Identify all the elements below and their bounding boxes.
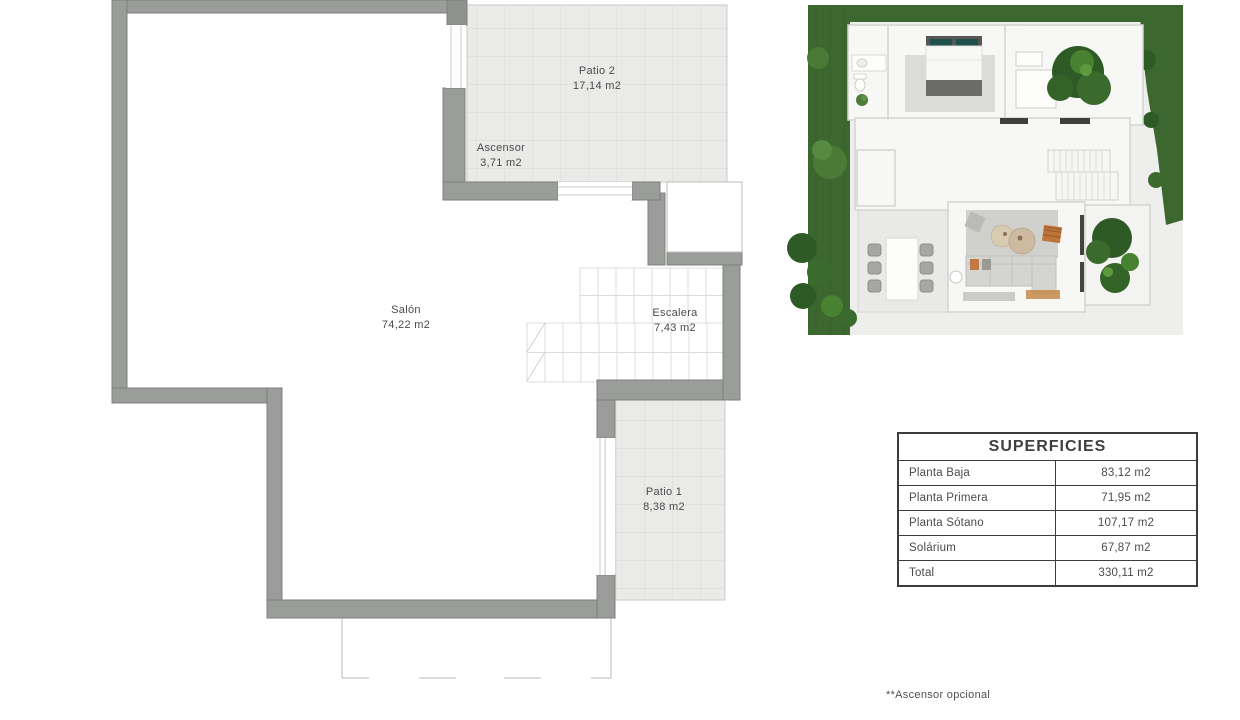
row-value: 71,95 m2 [1056,486,1198,511]
room-area: 7,43 m2 [610,321,740,336]
brochure-page: Patio 2 17,14 m2 Ascensor 3,71 m2 Salón … [0,0,1240,720]
room-name: Escalera [610,306,740,321]
footnote-ascensor-opcional: **Ascensor opcional [886,689,990,701]
window-salon-patio2 [558,182,632,200]
room-name: Patio 2 [532,64,662,79]
render-stairs [1048,150,1118,200]
row-value: 107,17 m2 [1056,511,1198,536]
render-chair [920,262,933,274]
wall-corner-block [447,0,467,25]
wall-entrance-left [648,193,665,265]
label-escalera: Escalera 7,43 m2 [610,306,740,336]
render-bed-throw [926,80,982,96]
render-chair [868,262,881,274]
row-label: Planta Baja [898,461,1056,486]
label-salon: Salón 74,22 m2 [341,303,471,333]
room-name: Salón [341,303,471,318]
wall-lower-left [267,388,282,618]
terrace-outline [342,618,611,678]
render-sofa-chaise [1032,256,1056,294]
render-chair [920,244,933,256]
render-chair [920,280,933,292]
label-ascensor: Ascensor 3,71 m2 [436,141,566,171]
wall-patio1-left-lower [597,575,615,618]
row-label: Planta Primera [898,486,1056,511]
wall-left [112,0,127,403]
render-top-patio [1016,46,1111,108]
table-row: Planta Primera 71,95 m2 [898,486,1197,511]
render-coffee-table [1009,228,1035,254]
render-dining [868,238,933,300]
table-row: Planta Baja 83,12 m2 [898,461,1197,486]
label-patio2: Patio 2 17,14 m2 [532,64,662,94]
render-chair [868,244,881,256]
table-row: Total 330,11 m2 [898,561,1197,587]
render-3d [787,5,1183,335]
render-side-table [950,271,962,283]
floor-plan-drawing [0,0,1240,720]
entrance-box [667,182,742,252]
room-area: 8,38 m2 [599,500,729,515]
row-label: Solárium [898,536,1056,561]
table-row: Planta Sótano 107,17 m2 [898,511,1197,536]
row-label: Total [898,561,1056,587]
row-label: Planta Sótano [898,511,1056,536]
render-sofa-pillow [982,259,991,270]
room-area: 3,71 m2 [436,156,566,171]
wall-escalera-bottom [597,380,740,400]
room-name: Patio 1 [599,485,729,500]
row-value: 67,87 m2 [1056,536,1198,561]
render-toilet [855,79,865,91]
room-area: 17,14 m2 [532,79,662,94]
room-name: Ascensor [436,141,566,156]
superficies-table: SUPERFICIES Planta Baja 83,12 m2 Planta … [897,432,1198,587]
table-header-row: SUPERFICIES [898,433,1197,461]
render-chair [868,280,881,292]
superficies-title: SUPERFICIES [898,433,1197,461]
table-row: Solárium 67,87 m2 [898,536,1197,561]
render-wood-mat [1026,290,1060,299]
room-area: 74,22 m2 [341,318,471,333]
label-patio1: Patio 1 8,38 m2 [599,485,729,515]
wall-patio2-bottom-left [443,182,558,200]
render-sofa-pillow [970,259,979,270]
window-patio2-left [446,25,466,88]
render-dining-table [886,238,918,300]
row-value: 330,11 m2 [1056,561,1198,587]
render-tv-console [963,292,1015,301]
render-small-room [857,150,895,206]
render-tree [807,47,829,69]
row-value: 83,12 m2 [1056,461,1198,486]
wall-top [112,0,467,13]
wall-bottom-left-step [112,388,282,403]
wall-bottom [267,600,615,618]
wall-patio2-bottom-right [632,182,660,200]
